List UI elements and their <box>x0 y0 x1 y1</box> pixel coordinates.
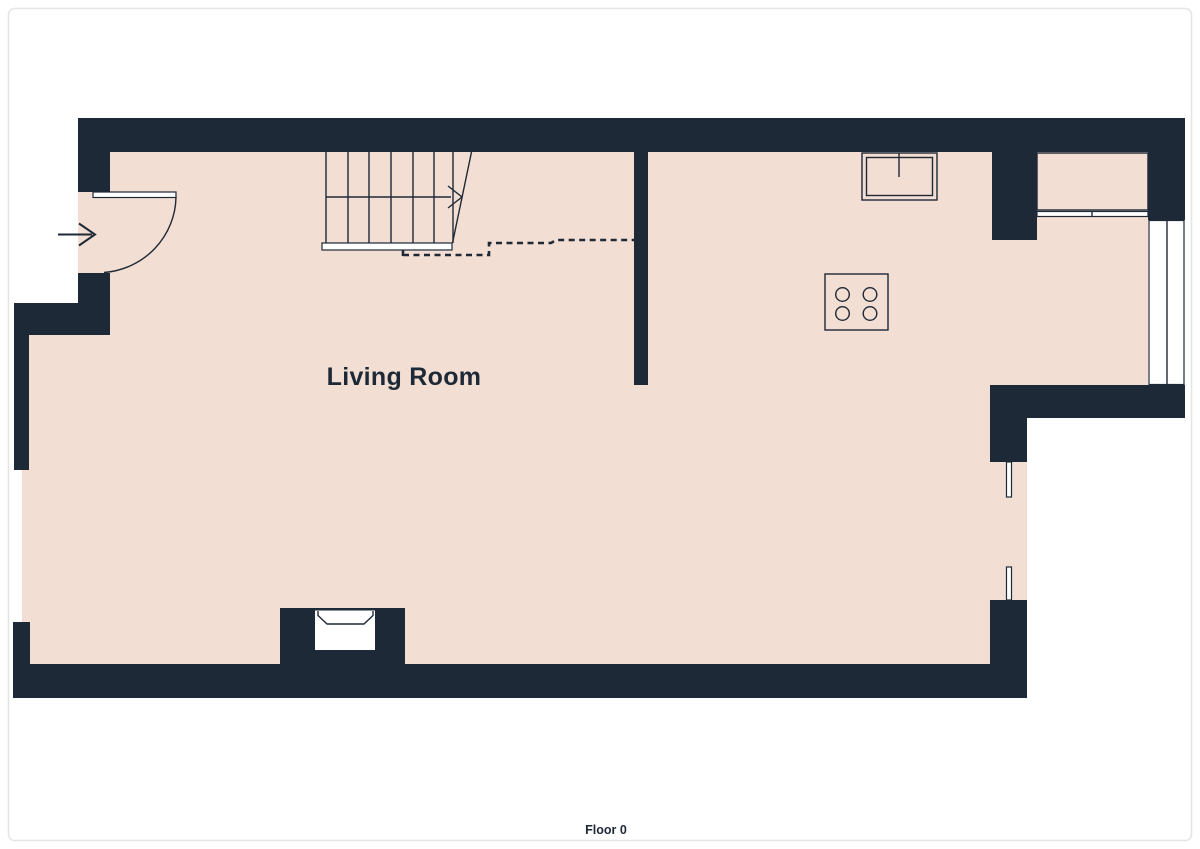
floor-left-extension <box>29 335 110 664</box>
divider-wall <box>634 118 648 385</box>
floor-entry-opening <box>78 192 110 273</box>
left-wall-step <box>14 303 110 335</box>
left-wall-strip <box>14 335 29 470</box>
floor-left-opening <box>22 470 30 622</box>
left-wall-below-door <box>78 273 110 303</box>
right-wall-mid-upper <box>990 385 1027 462</box>
window-right <box>1149 221 1184 385</box>
floorplan: Living Room Floor 0 <box>0 0 1200 849</box>
left-wall-upper <box>78 118 110 192</box>
room-label-living-room: Living Room <box>327 363 482 391</box>
right-wall-mid-lower <box>990 600 1027 698</box>
bottom-wall <box>13 664 1027 698</box>
fireplace-recess <box>315 611 375 651</box>
opening-jamb-upper <box>1007 462 1012 497</box>
opening-jamb-lower <box>1007 567 1012 600</box>
floor-label: Floor 0 <box>585 823 627 837</box>
floor-area <box>22 152 1148 664</box>
fireplace <box>315 611 375 651</box>
right-wall-upper <box>1148 118 1185 220</box>
floorplan-page: Living Room Floor 0 <box>0 0 1200 849</box>
floor-main <box>110 152 990 664</box>
door-leaf <box>93 192 176 198</box>
stair-base-step <box>322 243 452 250</box>
kitchen-pillar-wall <box>992 118 1037 240</box>
